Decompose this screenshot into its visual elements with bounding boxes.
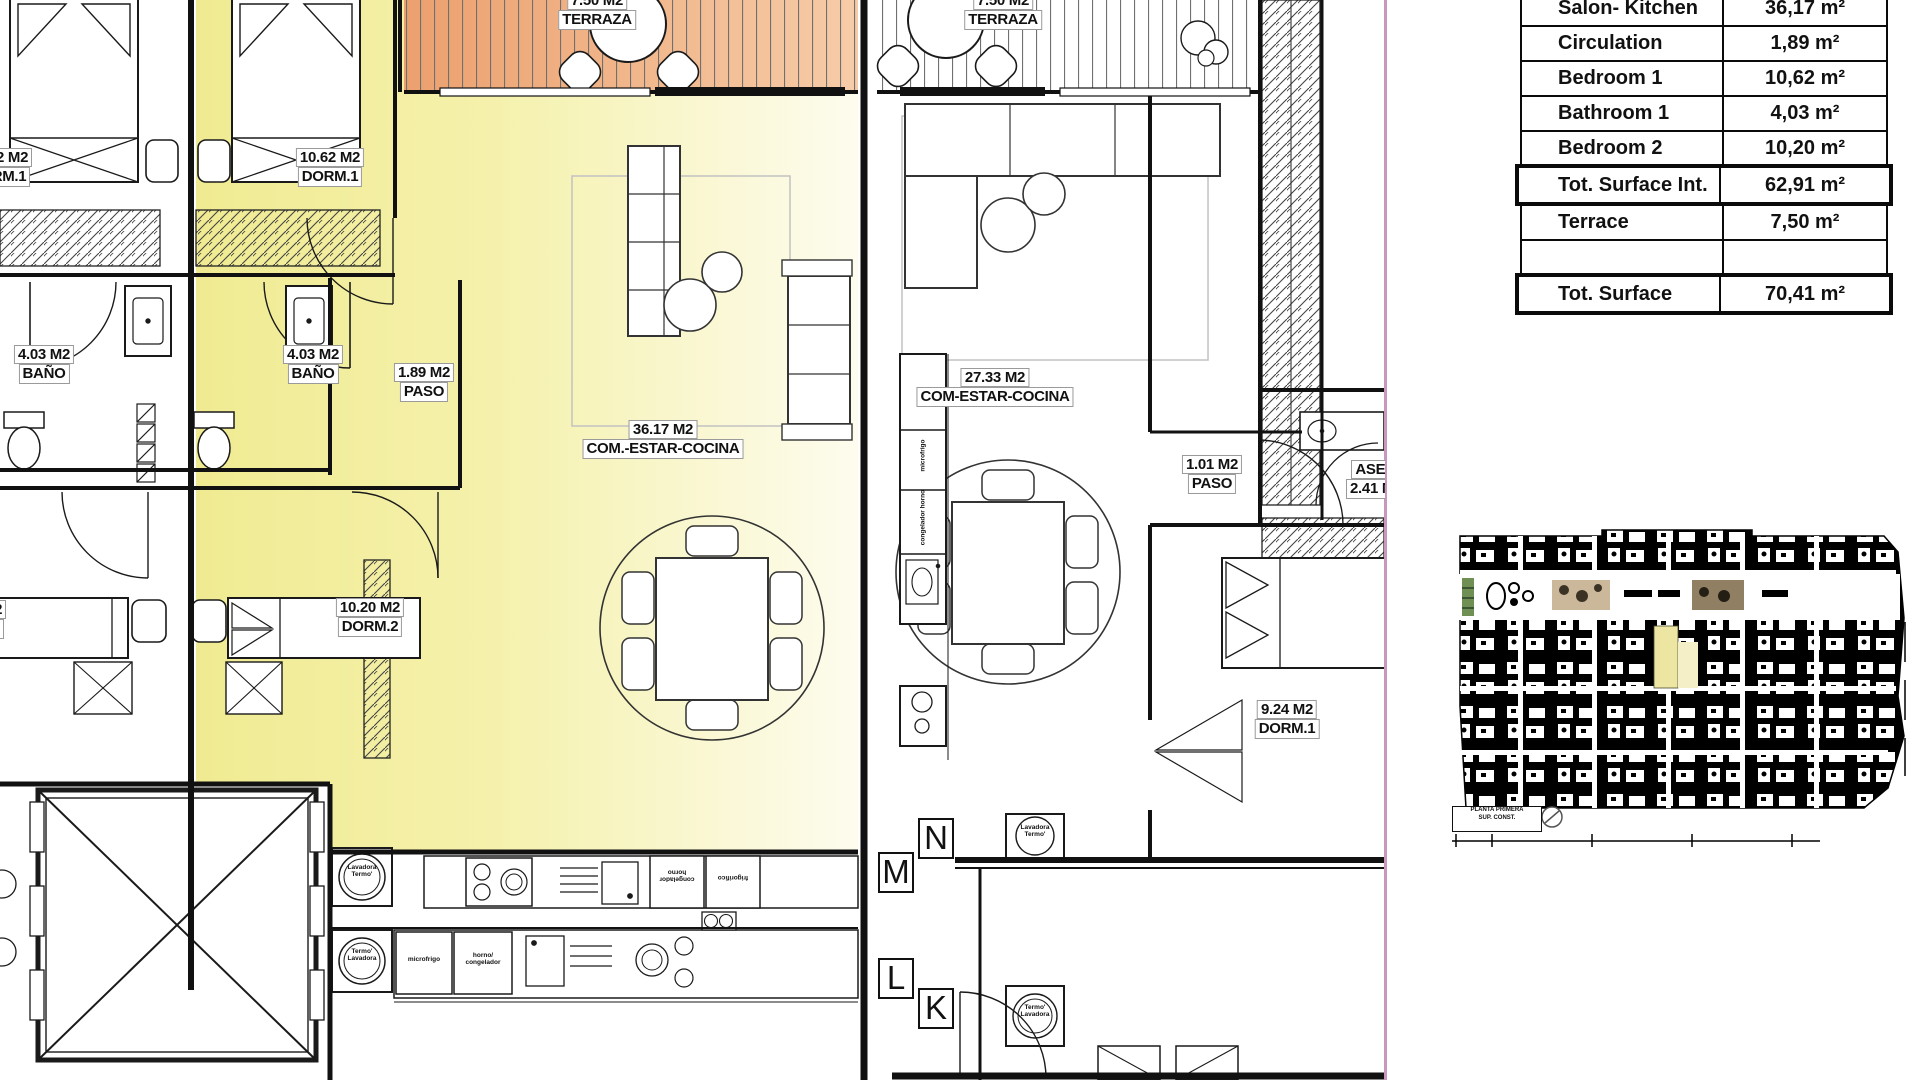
fridge-label: frigorifico [706, 874, 760, 881]
room-label-dorm2-left: 10.20 M2 DORM.2 [0, 600, 6, 639]
section-letter-m: M [878, 852, 914, 893]
fridge-label: congelador horno [919, 483, 926, 553]
washer-label: Lavadora Termo' [336, 864, 388, 878]
floor-plan-drawing [0, 0, 1385, 1080]
section-letter-n: N [918, 818, 954, 859]
section-letter-l: L [878, 958, 914, 999]
micro-label: microfrigo [396, 956, 452, 963]
fridge-label: congelador horno [650, 868, 704, 882]
table-row-empty [1520, 239, 1888, 276]
table-row: Terrace 7,50 m² [1520, 204, 1888, 241]
room-label-bano-main: 4.03 M2 BAÑO [283, 345, 343, 384]
main-plan-area: 10.62 M2 DORM.1 10.62 M2 DORM.1 7.50 M2 … [0, 0, 1385, 1080]
room-label-aseo-right: ASEO 2.41 M2 [1346, 460, 1385, 499]
washer-label: Termo' Lavadora [336, 948, 388, 962]
micro-label: microfrigo [919, 421, 926, 491]
table-row: Bedroom 2 10,20 m² [1520, 130, 1888, 167]
room-label-dorm1-main: 10.62 M2 DORM.1 [296, 148, 364, 187]
table-row: Bedroom 1 10,62 m² [1520, 60, 1888, 97]
table-row: Bathroom 1 4,03 m² [1520, 95, 1888, 132]
room-label-terraza-left: 7.50 M2 TERRAZA [558, 0, 636, 30]
oven-label: horno/ congelador [454, 952, 512, 966]
room-label-living-main: 36.17 M2 COM.-ESTAR-COCINA [583, 420, 744, 459]
sheet-boundary-line [1384, 0, 1387, 1080]
washer-label: Termo' Lavadora [1008, 1004, 1062, 1018]
room-label-dorm1-right: 9.24 M2 DORM.1 [1255, 700, 1320, 739]
table-row-total: Tot. Surface 70,41 m² [1515, 273, 1893, 315]
room-label-bano-left: 4.03 M2 BAÑO [14, 345, 74, 384]
room-label-dorm2-main: 10.20 M2 DORM.2 [336, 598, 404, 637]
washer-label: Lavadora Termo' [1008, 824, 1062, 838]
room-label-terraza-right: 7.50 M2 TERRAZA [964, 0, 1042, 30]
room-label-dorm1-left: 10.62 M2 DORM.1 [0, 148, 32, 187]
section-letter-k: K [918, 988, 954, 1029]
room-label-living-right: 27.33 M2 COM-ESTAR-COCINA [916, 368, 1073, 407]
room-label-paso-main: 1.89 M2 PASO [394, 363, 454, 402]
miniplan-caption: PLANTA PRIMERA SUP. CONST. [1452, 806, 1542, 832]
table-row-total-interior: Tot. Surface Int. 62,91 m² [1515, 164, 1893, 206]
table-row: Salon- Kitchen 36,17 m² [1520, 0, 1888, 27]
floorplan-sheet: 10.62 M2 DORM.1 10.62 M2 DORM.1 7.50 M2 … [0, 0, 1920, 1080]
room-label-paso-right: 1.01 M2 PASO [1182, 455, 1242, 494]
table-row: Circulation 1,89 m² [1520, 25, 1888, 62]
surface-table: Salon- Kitchen 36,17 m² Circulation 1,89… [1520, 0, 1888, 314]
